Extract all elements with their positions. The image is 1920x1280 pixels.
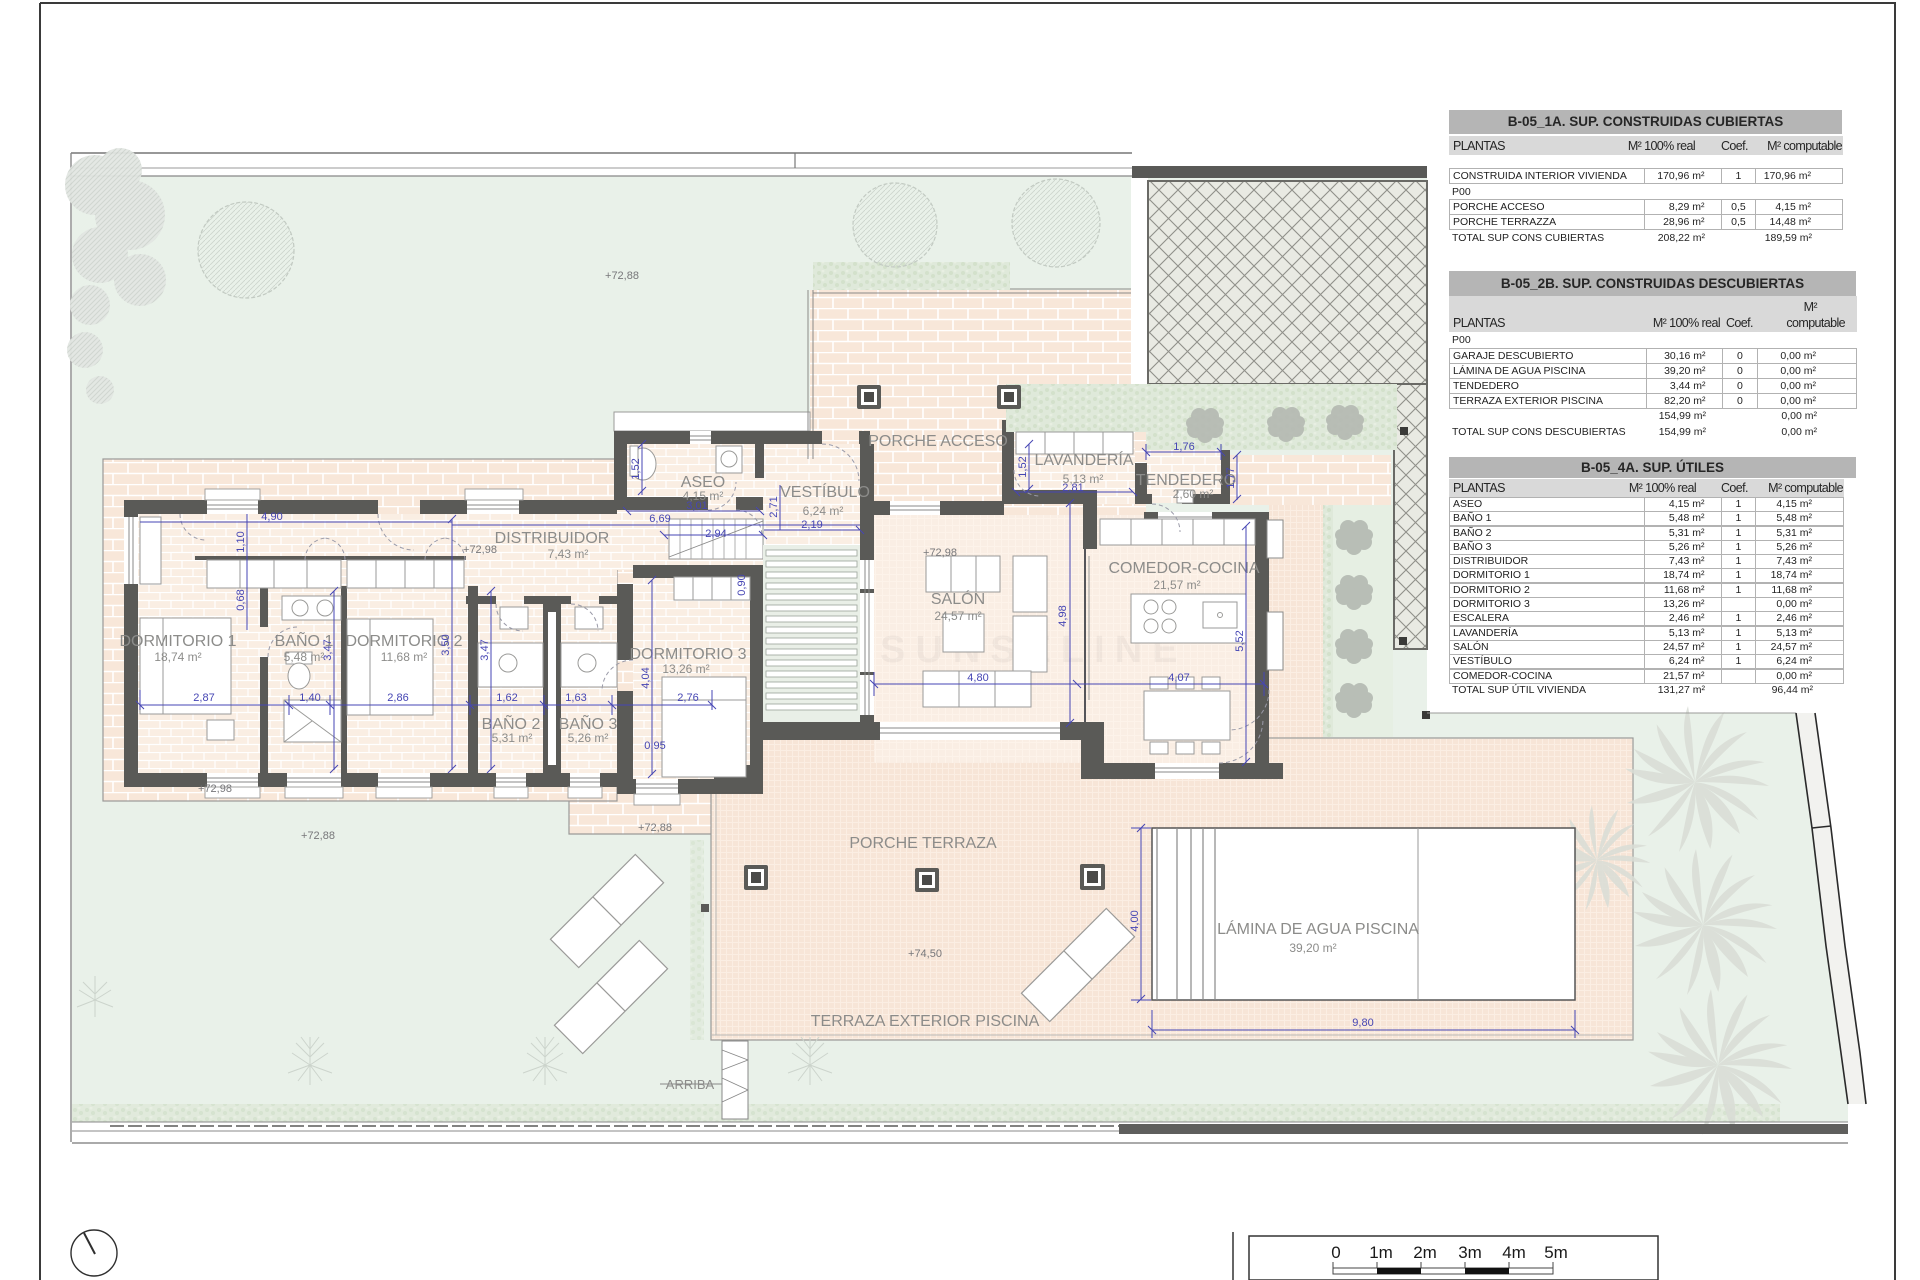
svg-text:11,68 m²: 11,68 m²: [381, 650, 427, 664]
svg-text:2,76: 2,76: [677, 692, 698, 704]
svg-text:18,74 m²: 18,74 m²: [154, 650, 201, 664]
svg-text:+72,98: +72,98: [198, 783, 232, 795]
svg-text:LAVANDERÍA: LAVANDERÍA: [1035, 450, 1134, 469]
svg-text:4,90: 4,90: [261, 511, 282, 523]
svg-text:DORMITORIO 3: DORMITORIO 3: [629, 646, 746, 663]
svg-text:BAÑO 2: BAÑO 2: [482, 713, 541, 733]
svg-text:2,60 m²: 2,60 m²: [1173, 487, 1214, 501]
svg-text:0,90: 0,90: [736, 574, 748, 595]
svg-text:4m: 4m: [1502, 1243, 1526, 1262]
svg-text:+72,98: +72,98: [463, 544, 497, 556]
svg-text:21,57 m²: 21,57 m²: [1153, 578, 1200, 592]
svg-text:DISTRIBUIDOR: DISTRIBUIDOR: [495, 530, 610, 547]
svg-text:3,50: 3,50: [440, 634, 452, 655]
svg-text:2,19: 2,19: [801, 519, 822, 531]
svg-text:0,68: 0,68: [235, 589, 247, 610]
svg-text:5m: 5m: [1544, 1243, 1568, 1262]
svg-text:SALÓN: SALÓN: [931, 589, 985, 608]
svg-text:1,40: 1,40: [299, 692, 320, 704]
svg-text:+72,88: +72,88: [605, 270, 639, 282]
svg-text:0,95: 0,95: [644, 740, 665, 752]
svg-text:2,86: 2,86: [387, 692, 408, 704]
svg-text:+74,50: +74,50: [908, 948, 942, 960]
svg-text:39,20 m²: 39,20 m²: [1289, 941, 1336, 955]
svg-text:5,48 m²: 5,48 m²: [284, 650, 325, 664]
svg-text:LÁMINA DE AGUA PISCINA: LÁMINA DE AGUA PISCINA: [1217, 919, 1419, 938]
svg-text:2,94: 2,94: [705, 528, 726, 540]
svg-text:VESTÍBULO: VESTÍBULO: [780, 482, 870, 501]
svg-text:9,80: 9,80: [1352, 1017, 1373, 1029]
svg-text:+72,88: +72,88: [301, 830, 335, 842]
svg-text:6,69: 6,69: [649, 513, 670, 525]
svg-text:1,76: 1,76: [1173, 441, 1194, 453]
svg-text:1,63: 1,63: [565, 692, 586, 704]
svg-text:3,47: 3,47: [479, 639, 491, 660]
svg-text:1,52: 1,52: [1017, 456, 1029, 477]
svg-text:ARRIBA: ARRIBA: [666, 1077, 715, 1092]
svg-text:2,71: 2,71: [768, 496, 780, 517]
svg-text:5,31 m²: 5,31 m²: [492, 731, 533, 745]
svg-text:4,07: 4,07: [1168, 672, 1189, 684]
svg-text:1,77: 1,77: [1225, 467, 1237, 488]
svg-text:BAÑO 3: BAÑO 3: [559, 713, 618, 733]
svg-text:4,80: 4,80: [967, 672, 988, 684]
svg-text:24,57 m²: 24,57 m²: [934, 609, 981, 623]
svg-text:3,47: 3,47: [322, 639, 334, 660]
svg-text:5,26 m²: 5,26 m²: [568, 731, 609, 745]
svg-text:1,10: 1,10: [235, 531, 247, 552]
svg-text:5,52: 5,52: [1234, 630, 1246, 651]
svg-text:6,24 m²: 6,24 m²: [803, 504, 844, 518]
svg-text:0: 0: [1331, 1243, 1340, 1262]
svg-text:PORCHE TERRAZA: PORCHE TERRAZA: [849, 835, 997, 852]
svg-text:+72,88: +72,88: [638, 822, 672, 834]
svg-text:3,01: 3,01: [686, 500, 707, 512]
svg-text:4,00: 4,00: [1129, 910, 1141, 931]
svg-text:7,43 m²: 7,43 m²: [548, 547, 589, 561]
svg-text:4,98: 4,98: [1057, 605, 1069, 626]
svg-text:TERRAZA EXTERIOR PISCINA: TERRAZA EXTERIOR PISCINA: [811, 1013, 1040, 1030]
svg-text:2,87: 2,87: [193, 692, 214, 704]
svg-text:1m: 1m: [1369, 1243, 1393, 1262]
svg-text:13,26 m²: 13,26 m²: [662, 662, 709, 676]
svg-text:2m: 2m: [1413, 1243, 1437, 1262]
svg-text:2,81: 2,81: [1062, 482, 1083, 494]
svg-text:COMEDOR-COCINA: COMEDOR-COCINA: [1108, 560, 1259, 577]
svg-text:4,04: 4,04: [640, 667, 652, 688]
svg-text:1,52: 1,52: [630, 458, 642, 479]
svg-text:PORCHE ACCESO: PORCHE ACCESO: [868, 433, 1008, 450]
svg-text:1,62: 1,62: [496, 692, 517, 704]
svg-text:3m: 3m: [1458, 1243, 1482, 1262]
svg-text:DORMITORIO 1: DORMITORIO 1: [119, 633, 236, 650]
svg-text:+72,98: +72,98: [923, 547, 957, 559]
